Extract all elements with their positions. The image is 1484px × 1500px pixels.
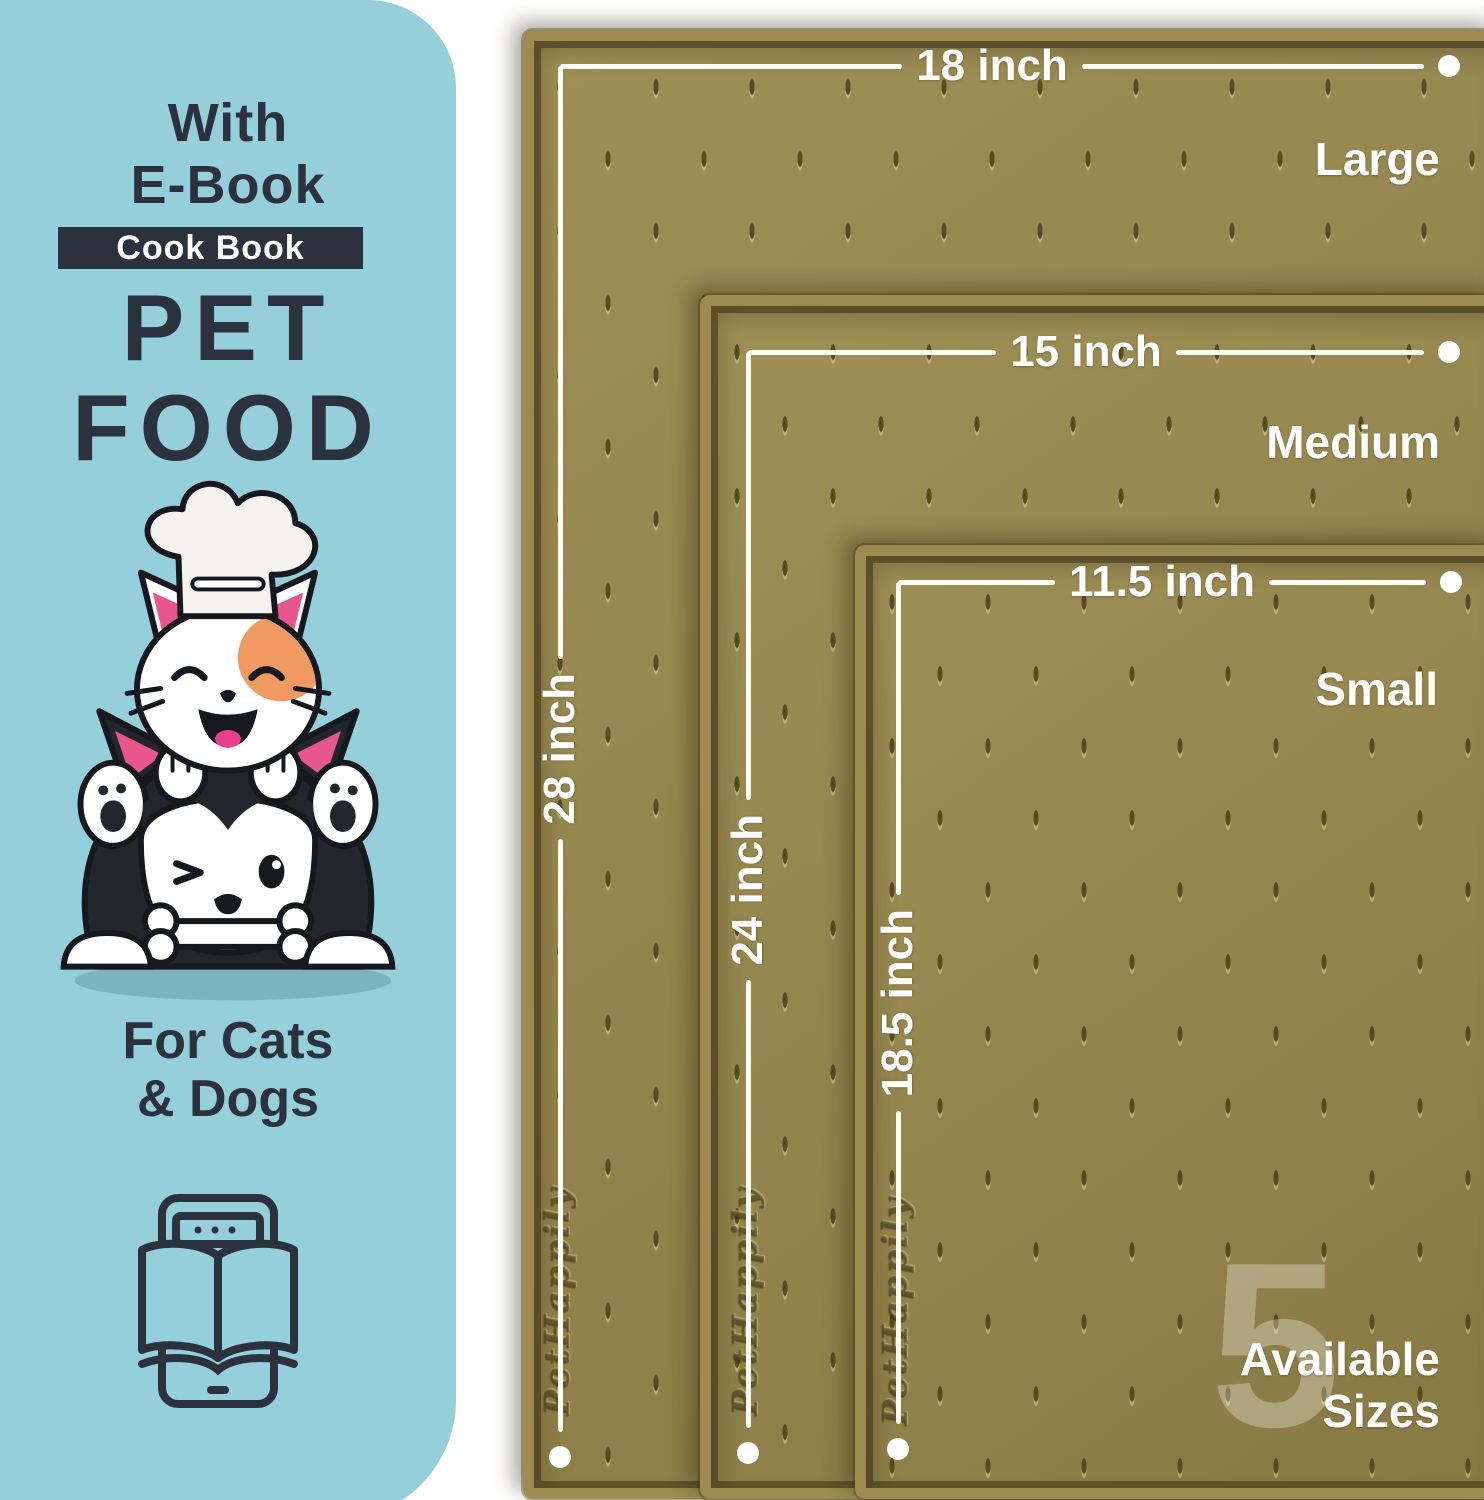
cookbook-badge: Cook Book — [58, 227, 363, 269]
pet-food-title: PET FOOD — [0, 278, 456, 478]
height-measure-medium: 24 inch — [734, 352, 762, 1464]
size-name-large: Large — [1315, 132, 1440, 186]
audience-line2: & Dogs — [0, 1070, 456, 1128]
measure-line-segment — [1269, 580, 1426, 585]
left-info-panel: With E-Book Cook Book PET FOOD — [0, 0, 456, 1500]
width-label-small: 11.5 inch — [1069, 557, 1255, 607]
ebook-heading-line1: With — [0, 92, 456, 154]
size-name-medium: Medium — [1266, 415, 1440, 469]
available-sizes-text: Available Sizes — [1240, 1333, 1440, 1437]
height-label-small: 18.5 inch — [873, 909, 923, 1097]
measure-line-segment — [896, 582, 901, 895]
height-measure-large: 28 inch — [546, 66, 574, 1468]
audience-line1: For Cats — [0, 1012, 456, 1070]
available-sizes-line1: Available — [1240, 1333, 1440, 1385]
measure-line-segment — [746, 980, 751, 1428]
product-infographic: With E-Book Cook Book PET FOOD — [0, 0, 1484, 1500]
width-label-large: 18 inch — [916, 41, 1068, 91]
width-label-medium: 15 inch — [1010, 327, 1162, 377]
measure-line-segment — [748, 350, 996, 355]
available-sizes-line2: Sizes — [1240, 1385, 1440, 1437]
height-label-large: 28 inch — [535, 673, 585, 825]
measure-endpoint-dot — [549, 1446, 571, 1468]
measure-line-segment — [898, 580, 1055, 585]
measure-endpoint-dot — [737, 1442, 759, 1464]
measure-endpoint-dot — [1438, 55, 1460, 77]
measure-line-segment — [1082, 64, 1424, 69]
measure-line-segment — [746, 352, 751, 800]
ebook-heading: With E-Book — [0, 92, 456, 216]
width-measure-large: 18 inch — [560, 52, 1460, 80]
pet-food-title-line1: PET — [0, 278, 456, 378]
measure-line-segment — [896, 1111, 901, 1424]
measure-line-segment — [558, 839, 563, 1432]
width-measure-small: 11.5 inch — [898, 568, 1462, 596]
ebook-heading-line2: E-Book — [0, 154, 456, 216]
measure-line-segment — [560, 64, 902, 69]
ebook-icon — [128, 1192, 308, 1412]
measure-endpoint-dot — [887, 1438, 909, 1460]
audience-text: For Cats & Dogs — [0, 1012, 456, 1128]
measure-endpoint-dot — [1438, 341, 1460, 363]
height-label-medium: 24 inch — [723, 814, 773, 966]
cat-chef-dog-illustration — [30, 455, 426, 1011]
measure-line-segment — [1176, 350, 1424, 355]
width-measure-medium: 15 inch — [748, 338, 1460, 366]
cookbook-badge-label: Cook Book — [116, 229, 304, 268]
height-measure-small: 18.5 inch — [884, 582, 912, 1460]
measure-line-segment — [558, 66, 563, 659]
measure-endpoint-dot — [1440, 571, 1462, 593]
size-name-small: Small — [1315, 662, 1438, 716]
